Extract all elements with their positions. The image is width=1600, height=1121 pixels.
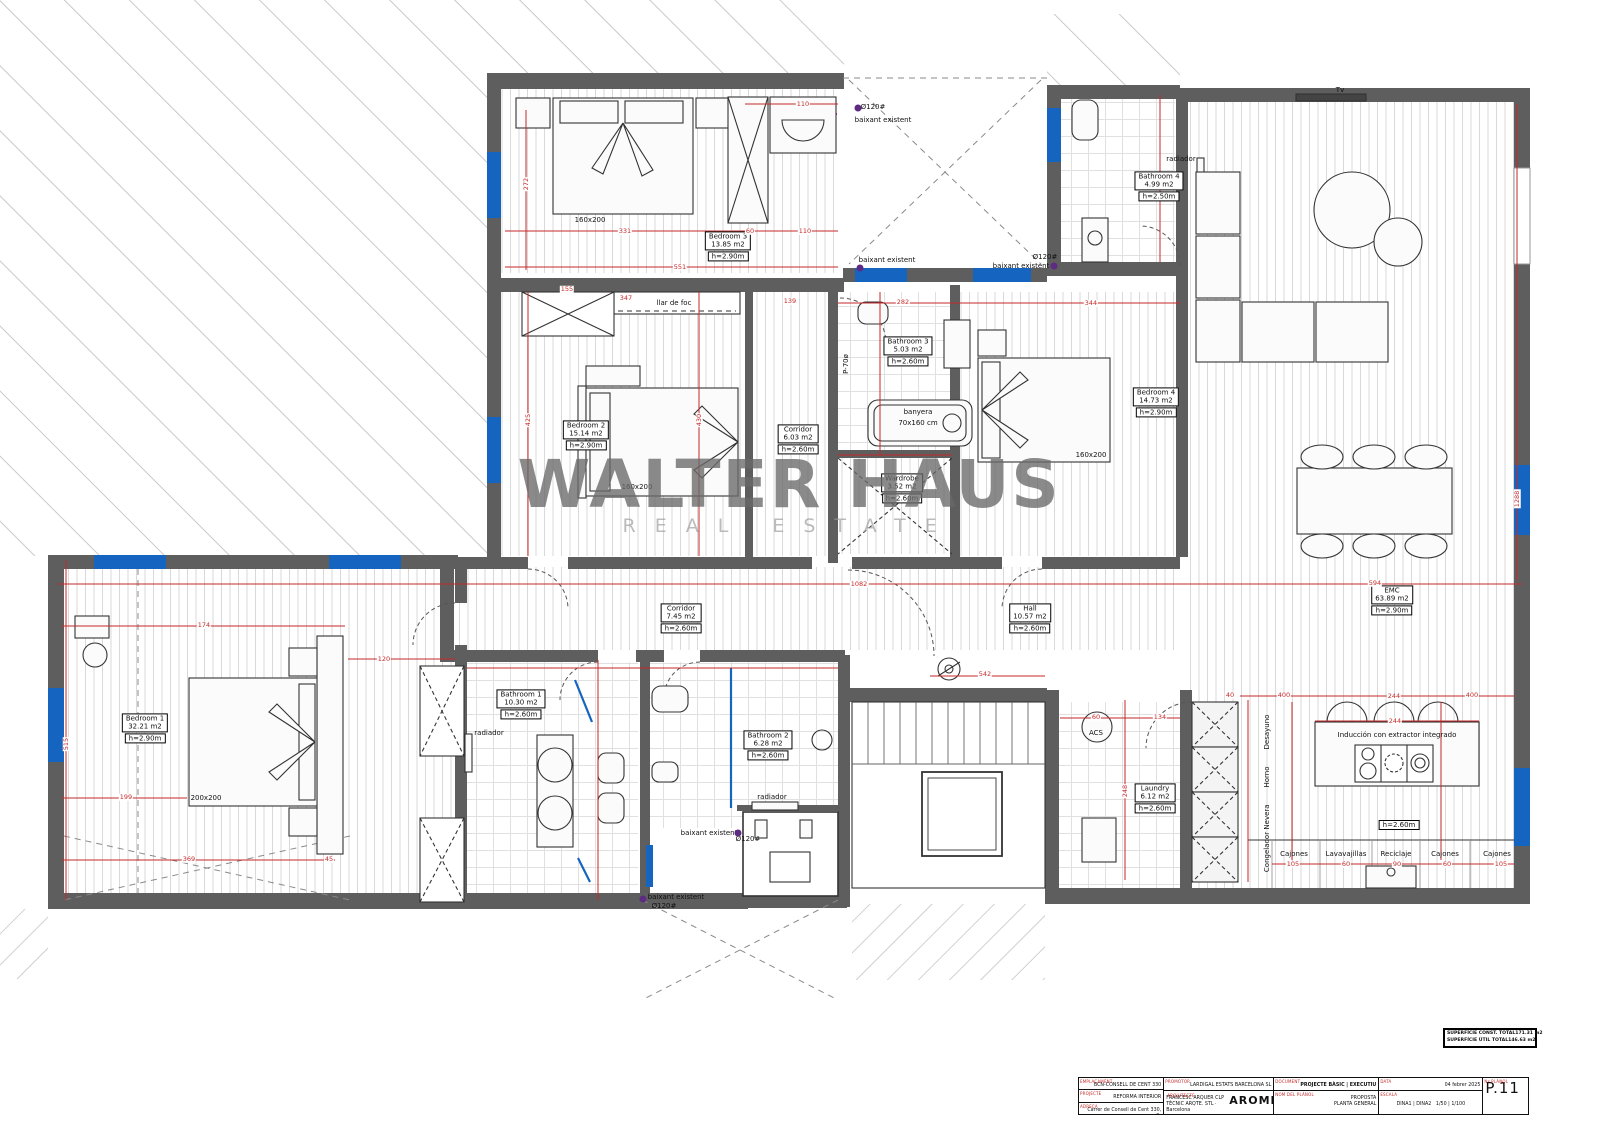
area-label-2: SUPERFÍCIE ÚTIL TOTAL	[1447, 1038, 1508, 1045]
titleblock-col-promoter: PROMOTOR LARDIGAL ESTATS BARCELONA SL AR…	[1164, 1078, 1274, 1114]
tb-label-site: EMPLAÇAMENT	[1080, 1079, 1113, 1084]
aromir-logo: AROMIR.	[1229, 1094, 1271, 1107]
tb-date: 04 febrer 2025	[1381, 1083, 1480, 1089]
tb-label-address: ADREÇA	[1080, 1104, 1098, 1109]
floorplan-drawing	[0, 0, 1600, 1121]
tb-architect-2: TÈCNIC ARQTE. STL · Barcelona	[1166, 1102, 1229, 1114]
tb-label-architect: ARQUITECTE	[1167, 1093, 1195, 1098]
tb-label-project: PROJECTE	[1080, 1091, 1101, 1096]
floorplan-canvas: Bedroom 3 13.85 m2 h=2.90m Bedroom 2 15.…	[0, 0, 1600, 1121]
area-value-1: 171.31 m2	[1515, 1031, 1542, 1038]
tb-label-document: DOCUMENT	[1275, 1079, 1300, 1084]
surface-area-box: SUPERFÍCIE CONST. TOTAL 171.31 m2 SUPERF…	[1443, 1028, 1537, 1048]
tb-label-promoter: PROMOTOR	[1165, 1079, 1190, 1084]
title-block: EMPLAÇAMENT BCN-CONSELL DE CENT 330 PROJ…	[1078, 1077, 1529, 1115]
tb-label-scale: ESCALA	[1380, 1092, 1397, 1097]
tb-label-plan-name: NOM DEL PLÀNOL	[1275, 1092, 1314, 1097]
titleblock-col-document: DOCUMENT PROJECTE BÀSIC | EXECUTIU NOM D…	[1274, 1078, 1379, 1114]
titleblock-col-number: Nº PLÀNOL P.11	[1483, 1078, 1528, 1114]
tb-formats: DINA1 | DINA2 1/50 | 1/100	[1381, 1102, 1480, 1108]
tb-label-number: Nº PLÀNOL	[1484, 1079, 1508, 1084]
area-value-2: 146.63 m2	[1508, 1038, 1535, 1045]
titleblock-col-site: EMPLAÇAMENT BCN-CONSELL DE CENT 330 PROJ…	[1079, 1078, 1164, 1114]
area-label-1: SUPERFÍCIE CONST. TOTAL	[1447, 1031, 1515, 1038]
tb-label-date: DATA	[1380, 1079, 1391, 1084]
titleblock-col-date-scale: DATA 04 febrer 2025 ESCALA DINA1 | DINA2…	[1379, 1078, 1483, 1114]
tb-plan-name-2: PLANTA GENERAL	[1276, 1102, 1376, 1108]
